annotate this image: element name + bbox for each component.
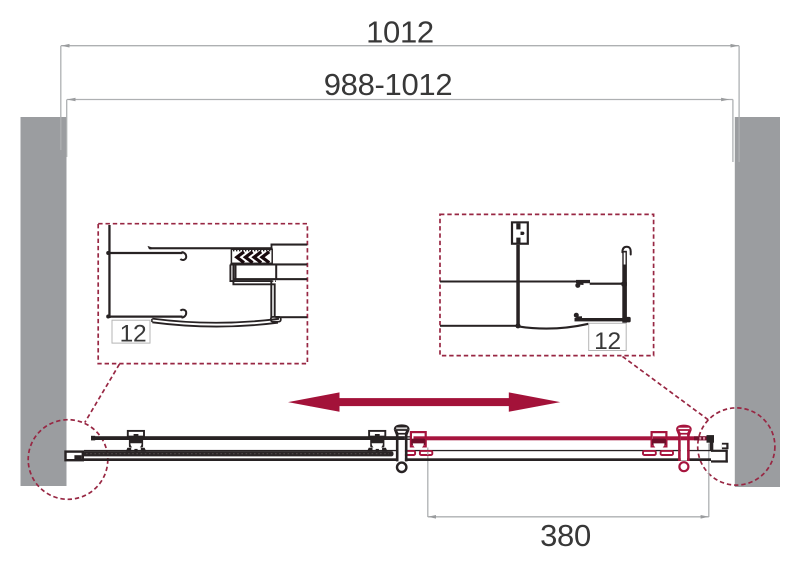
svg-text:988-1012: 988-1012	[324, 67, 453, 102]
svg-text:12: 12	[120, 320, 147, 347]
svg-text:12: 12	[594, 328, 621, 355]
svg-text:380: 380	[540, 518, 591, 553]
svg-text:1012: 1012	[366, 15, 434, 50]
